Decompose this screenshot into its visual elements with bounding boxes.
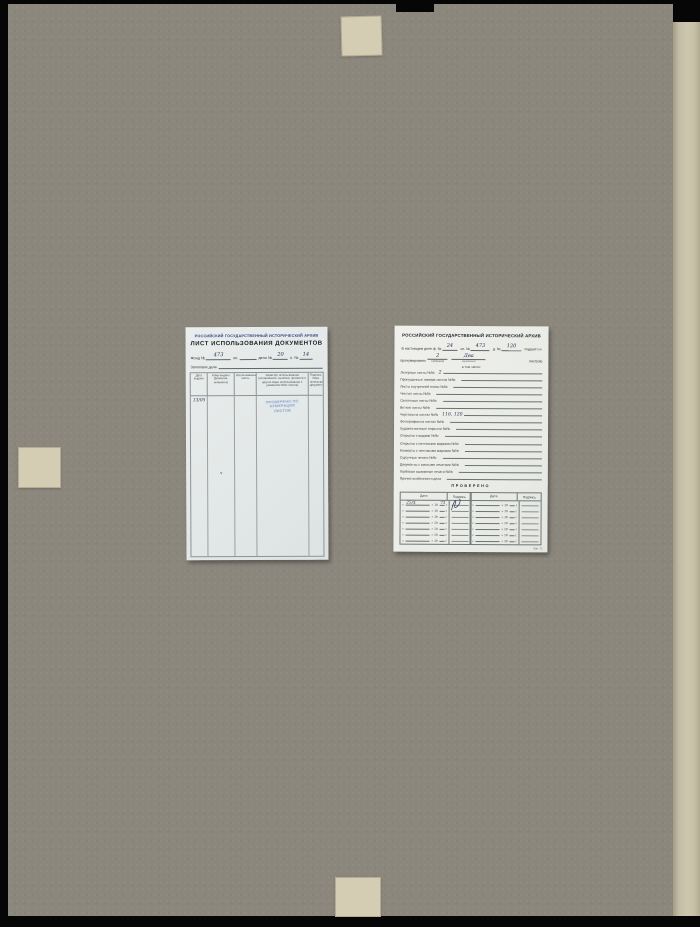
- special-item-label: Пропущенные номера листов №№: [400, 378, 457, 382]
- usage-table-body: 13/05 ч ПРОВЕРЕНО ПО НУМЕРАЦИИ ЛИСТОВ: [191, 396, 324, 557]
- delo-label: дело №: [258, 355, 272, 359]
- entry-mark-handwriting: ч: [220, 470, 223, 475]
- case-value-3-line: 120: [502, 342, 522, 351]
- quote-close: »: [501, 539, 503, 543]
- archive-name-header: РОССИЙСКИЙ ГОСУДАРСТВЕННЫЙ ИСТОРИЧЕСКИЙ …: [395, 333, 549, 339]
- quote-close: »: [501, 515, 503, 519]
- check-row-date-cell: « » 19 г.: [400, 537, 449, 543]
- quote-close: »: [501, 521, 503, 525]
- delo-value-line: 20: [273, 351, 288, 359]
- year-prefix: 19: [434, 502, 437, 506]
- signature-column-header: Подпись: [518, 495, 541, 499]
- opis-label: оп.: [233, 356, 238, 360]
- print-order-footer: Зак. 72: [533, 546, 542, 550]
- case-value-2-line: 473: [471, 342, 490, 351]
- case-value-1-handwriting: 24: [447, 343, 453, 349]
- quote-open: «: [402, 527, 404, 531]
- count-numeric-slot: 2 (цифрами): [428, 353, 448, 363]
- quote-open: «: [472, 527, 474, 531]
- certification-sheet-document: РОССИЙСКИЙ ГОСУДАРСТВЕННЫЙ ИСТОРИЧЕСКИЙ …: [393, 326, 548, 553]
- year-suffix: г.: [446, 521, 448, 525]
- year-line: [439, 536, 444, 542]
- year-suffix: г.: [446, 539, 448, 543]
- column-header-used-sheets: Использованные листы: [235, 373, 257, 396]
- case-heading-label: Заголовок дела: [191, 365, 217, 369]
- quote-open: «: [472, 515, 474, 519]
- year-suffix: г.: [516, 533, 518, 537]
- quote-close: »: [431, 521, 433, 525]
- case-heading-rule: [219, 367, 323, 368]
- check-table-left: Дата Подпись « 25/X » 19: [399, 492, 471, 545]
- year-prefix: 19: [504, 509, 507, 513]
- case-heading-line: Заголовок дела: [191, 362, 323, 369]
- body-cell-date: 13/05: [191, 396, 209, 556]
- usage-table: Дата выдачи Кому выдано (фамилия, инициа…: [190, 372, 325, 558]
- check-section: ПРОВЕРЕНО Дата Подпись « 25/X: [397, 484, 543, 547]
- check-row-signature-cell: [450, 537, 471, 543]
- file-reference-line: Фонд № 473 оп. дело № 20 л. № 14: [191, 351, 323, 360]
- year-prefix: 19: [504, 527, 507, 531]
- check-table-right-rows: « » 19 г.: [470, 501, 540, 544]
- body-cell-signature: [309, 396, 324, 556]
- case-value-1-line: 24: [442, 342, 457, 351]
- year-suffix: г.: [516, 509, 518, 513]
- signature-rule: [452, 523, 469, 524]
- sheets-word: лист(ов): [529, 359, 543, 363]
- special-item-label: Гербовые выжимные печати №№: [400, 469, 455, 473]
- quote-open: «: [402, 533, 404, 537]
- special-item-handwriting: 2: [437, 370, 444, 375]
- special-item-label: Сургучные печати №№: [400, 455, 439, 459]
- list-label: л. №: [290, 355, 298, 359]
- year-suffix: г.: [446, 527, 448, 531]
- special-item-label: Литерные листы №№: [400, 371, 436, 375]
- year-prefix: 19: [504, 515, 507, 519]
- delo-value-handwriting: 20: [277, 351, 284, 357]
- backing-notch: [396, 4, 434, 12]
- signature-rule: [522, 535, 539, 536]
- special-item-label: Открытки с видами №№: [400, 434, 441, 438]
- check-row-date-cell: « » 19 г.: [470, 538, 519, 544]
- signature-rule: [452, 535, 469, 536]
- numbered-label: пронумеровано: [400, 359, 425, 363]
- count-words-slot: Два (прописью): [452, 353, 486, 363]
- year-prefix: 19: [434, 527, 437, 531]
- signature-rule: [522, 511, 539, 512]
- quote-open: «: [402, 539, 404, 543]
- check-row: « » 19 г.: [470, 538, 540, 544]
- year-suffix: г.: [516, 503, 518, 507]
- quote-close: »: [501, 509, 503, 513]
- column-header-date: Дата выдачи: [191, 373, 208, 396]
- case-value-2-handwriting: 473: [476, 343, 486, 349]
- day-line: [405, 536, 430, 542]
- signature-rule: [452, 541, 469, 542]
- special-item-label: Ветхие листы №№: [400, 406, 432, 410]
- signature-flourish: [448, 496, 464, 512]
- year-handwriting: 73: [440, 500, 445, 505]
- case-label-1: В настоящем деле ф. №: [401, 347, 441, 351]
- year-prefix: 19: [504, 521, 507, 525]
- quote-open: «: [472, 503, 474, 507]
- year-suffix: г.: [446, 515, 448, 519]
- year-prefix: 19: [434, 533, 437, 537]
- day-handwriting: 25/X: [406, 500, 415, 505]
- body-cell-used-sheets: [235, 396, 257, 556]
- year-prefix: 19: [434, 539, 437, 543]
- tape-top: [340, 15, 382, 56]
- count-numeric-handwriting: 2: [436, 353, 439, 359]
- quote-open: «: [472, 539, 474, 543]
- quote-open: «: [402, 508, 404, 512]
- quote-close: »: [502, 503, 504, 507]
- signature-rule: [452, 529, 469, 530]
- special-item-label: Фотографии на листах №№: [400, 420, 446, 424]
- tape-left: [18, 447, 61, 488]
- quote-open: «: [472, 521, 474, 525]
- special-item-label: Конверты с почтовыми марками №№: [400, 448, 461, 452]
- year-prefix: 19: [504, 533, 507, 537]
- archive-photo-page: РОССИЙСКИЙ ГОСУДАРСТВЕННЫЙ ИСТОРИЧЕСКИЙ …: [0, 0, 700, 927]
- case-line-tail: подшито и: [524, 347, 541, 351]
- opis-value-line: [239, 352, 256, 360]
- column-header-usage-type: Характер использования (копирование, вып…: [257, 373, 309, 396]
- year-suffix: г.: [516, 527, 518, 531]
- year-prefix: 19: [434, 521, 437, 525]
- column-header-issued-to: Кому выдано (фамилия, инициалы): [208, 373, 235, 396]
- check-row-signature-cell: [520, 538, 541, 544]
- year-suffix: г.: [516, 515, 518, 519]
- signature-rule: [522, 523, 539, 524]
- entry-date-handwriting: 13/05: [193, 398, 206, 403]
- quote-open: «: [472, 533, 474, 537]
- year-prefix: 19: [504, 539, 507, 543]
- special-item-rule: [447, 479, 542, 480]
- special-item-label: Открытки с почтовыми марками №№: [400, 441, 461, 445]
- fond-value-handwriting: 473: [214, 352, 224, 358]
- quote-close: »: [501, 533, 503, 537]
- special-item-label: Чертежи на листах №№: [400, 413, 440, 417]
- body-cell-usage-type: ПРОВЕРЕНО ПО НУМЕРАЦИИ ЛИСТОВ: [257, 396, 310, 556]
- usage-sheet-title: ЛИСТ ИСПОЛЬЗОВАНИЯ ДОКУМЕНТОВ: [186, 340, 328, 347]
- signature-rule: [522, 529, 539, 530]
- count-words-handwriting: Два: [464, 353, 474, 359]
- usage-sheet-document: РОССИЙСКИЙ ГОСУДАРСТВЕННЫЙ ИСТОРИЧЕСКИЙ …: [185, 327, 328, 561]
- signature-rule: [522, 517, 539, 518]
- special-item-label: Листы внутренней описи №№: [400, 385, 449, 389]
- adjacent-page-edge: [673, 22, 700, 916]
- check-table-right: Дата Подпись « » 19: [469, 492, 541, 545]
- year-prefix: 19: [434, 515, 437, 519]
- special-item-label: Прочие особенности дела: [400, 476, 443, 480]
- quote-close: »: [501, 527, 503, 531]
- quote-close: »: [431, 515, 433, 519]
- case-value-3-handwriting: 120: [507, 343, 517, 349]
- quote-open: «: [402, 514, 404, 518]
- special-item-label: Художественные открытки №№: [400, 427, 452, 431]
- case-label-3: д. №: [493, 347, 501, 351]
- special-item-label: Документы с вислыми печатями №№: [400, 462, 461, 466]
- signature-rule: [522, 505, 539, 506]
- count-words-line: Два: [452, 353, 486, 360]
- list-value-line: 14: [299, 351, 312, 359]
- quote-open: «: [472, 509, 474, 513]
- case-numbers-line: В настоящем деле ф. № 24 оп. № 473 д. № …: [400, 343, 542, 352]
- case-label-2: оп. №: [460, 347, 470, 351]
- check-section-title: ПРОВЕРЕНО: [398, 484, 544, 489]
- day-line: [475, 536, 500, 542]
- check-row: « » 19 г.: [400, 537, 470, 543]
- list-value-handwriting: 14: [303, 351, 310, 357]
- usage-table-header: Дата выдачи Кому выдано (фамилия, инициа…: [191, 373, 323, 397]
- fond-label: Фонд №: [191, 356, 205, 360]
- body-cell-issued-to: ч: [208, 396, 236, 556]
- tape-bottom: [335, 877, 381, 917]
- special-item-line: Прочие особенности дела: [400, 473, 542, 481]
- year-suffix: г.: [446, 533, 448, 537]
- gray-mat-board: РОССИЙСКИЙ ГОСУДАРСТВЕННЫЙ ИСТОРИЧЕСКИЙ …: [8, 4, 673, 916]
- quote-close: »: [431, 527, 433, 531]
- signature-rule: [522, 541, 539, 542]
- signature-rule: [452, 517, 469, 518]
- year-suffix: г.: [516, 539, 518, 543]
- count-numeric-sublabel: (цифрами): [431, 360, 444, 363]
- sheet-count-line: пронумеровано 2 (цифрами) Два (прописью)…: [400, 353, 542, 364]
- special-item-label: Склеенные листы №№: [400, 399, 439, 403]
- quote-close: »: [432, 502, 434, 506]
- year-line: [509, 536, 514, 542]
- quote-close: »: [431, 508, 433, 512]
- column-header-signature: Подпись лица, использовавшего документы: [309, 373, 323, 396]
- archive-name-header: РОССИЙСКИЙ ГОСУДАРСТВЕННЫЙ ИСТОРИЧЕСКИЙ …: [186, 334, 328, 339]
- special-item-handwriting: 116, 120: [440, 413, 464, 418]
- special-items-list: Литерные листы №№ 2 Пропущенные номера л…: [400, 368, 543, 481]
- year-prefix: 19: [434, 508, 437, 512]
- fond-value-line: 473: [206, 352, 231, 360]
- count-words-sublabel: (прописью): [462, 360, 475, 363]
- stamp-line-3: ЛИСТОВ: [261, 408, 304, 414]
- special-item-label: Чистые листы №№: [400, 392, 432, 396]
- quote-close: »: [431, 539, 433, 543]
- year-prefix: 19: [504, 503, 507, 507]
- quote-close: »: [431, 533, 433, 537]
- quote-open: «: [402, 521, 404, 525]
- year-suffix: г.: [516, 521, 518, 525]
- blue-verification-stamp: ПРОВЕРЕНО ПО НУМЕРАЦИИ ЛИСТОВ: [261, 399, 305, 414]
- quote-open: «: [402, 502, 404, 506]
